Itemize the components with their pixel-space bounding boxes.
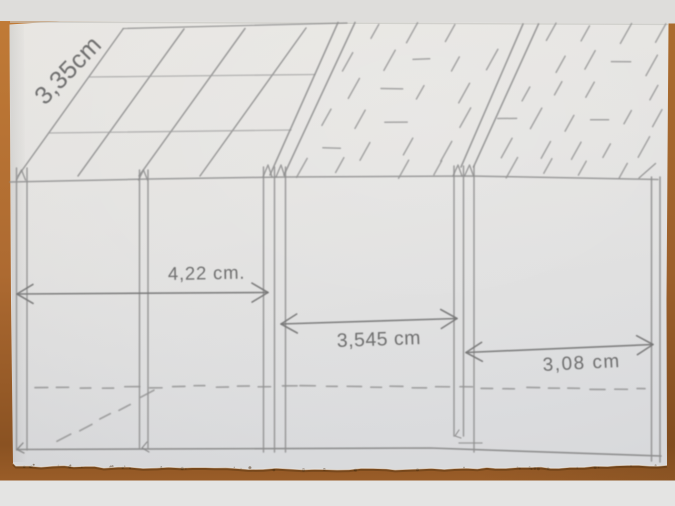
svg-text:3,545 cm: 3,545 cm bbox=[336, 327, 421, 352]
svg-text:4,22 cm.: 4,22 cm. bbox=[168, 262, 246, 284]
svg-text:3,08 cm: 3,08 cm bbox=[542, 351, 621, 376]
